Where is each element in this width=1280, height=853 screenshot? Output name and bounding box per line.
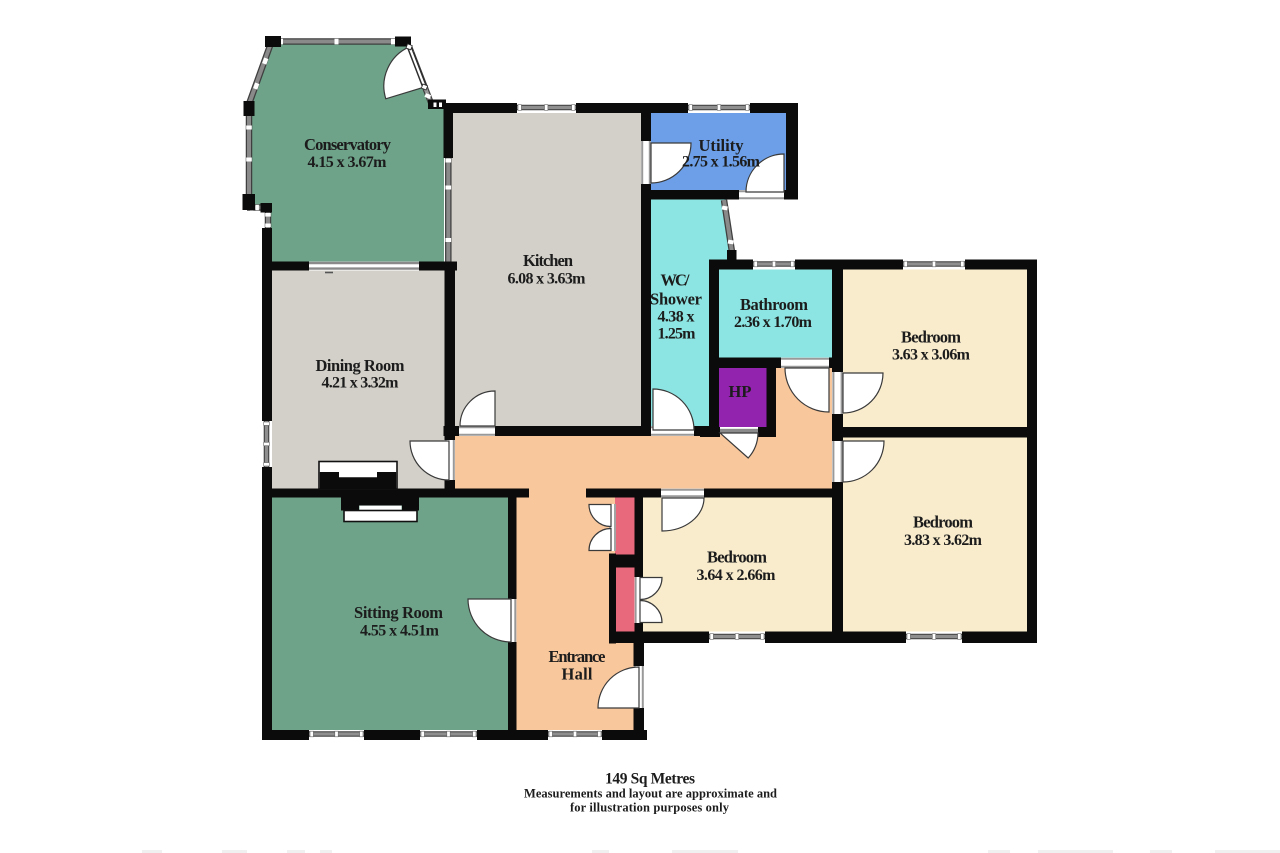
svg-text:Hall: Hall — [562, 665, 593, 684]
svg-text:3.83 x 3.62m: 3.83 x 3.62m — [904, 532, 983, 549]
svg-text:3.64 x 2.66m: 3.64 x 2.66m — [697, 567, 777, 584]
svg-text:4.38 x: 4.38 x — [658, 309, 695, 326]
svg-text:4.15 x 3.67m: 4.15 x 3.67m — [308, 154, 388, 171]
svg-text:Measurements and layout are ap: Measurements and layout are approximate … — [524, 787, 777, 801]
svg-text:Bedroom: Bedroom — [901, 328, 961, 347]
svg-text:Entrance: Entrance — [549, 647, 606, 666]
svg-text:4.21 x 3.32m: 4.21 x 3.32m — [322, 375, 400, 392]
svg-text:2.75 x 1.56m: 2.75 x 1.56m — [682, 154, 761, 171]
svg-text:2.36 x 1.70m: 2.36 x 1.70m — [734, 314, 813, 331]
svg-text:Shower: Shower — [650, 290, 702, 309]
svg-text:1.25m: 1.25m — [658, 326, 697, 343]
svg-text:149 Sq Metres: 149 Sq Metres — [605, 771, 695, 788]
svg-text:6.08 x 3.63m: 6.08 x 3.63m — [508, 271, 587, 288]
svg-text:Dining Room: Dining Room — [316, 356, 405, 375]
svg-text:WC/: WC/ — [661, 271, 690, 290]
svg-text:Kitchen: Kitchen — [523, 251, 573, 270]
svg-text:Bedroom: Bedroom — [707, 548, 767, 567]
svg-text:Bedroom: Bedroom — [913, 513, 973, 532]
svg-text:for illustration purposes only: for illustration purposes only — [570, 801, 730, 815]
svg-text:4.55 x 4.51m: 4.55 x 4.51m — [360, 623, 440, 640]
svg-text:Bathroom: Bathroom — [740, 295, 808, 314]
svg-text:HP: HP — [729, 382, 752, 401]
svg-text:Conservatory: Conservatory — [304, 135, 392, 154]
svg-text:3.63 x 3.06m: 3.63 x 3.06m — [892, 347, 971, 364]
svg-text:Sitting Room: Sitting Room — [354, 603, 443, 622]
svg-text:Utility: Utility — [699, 136, 745, 155]
